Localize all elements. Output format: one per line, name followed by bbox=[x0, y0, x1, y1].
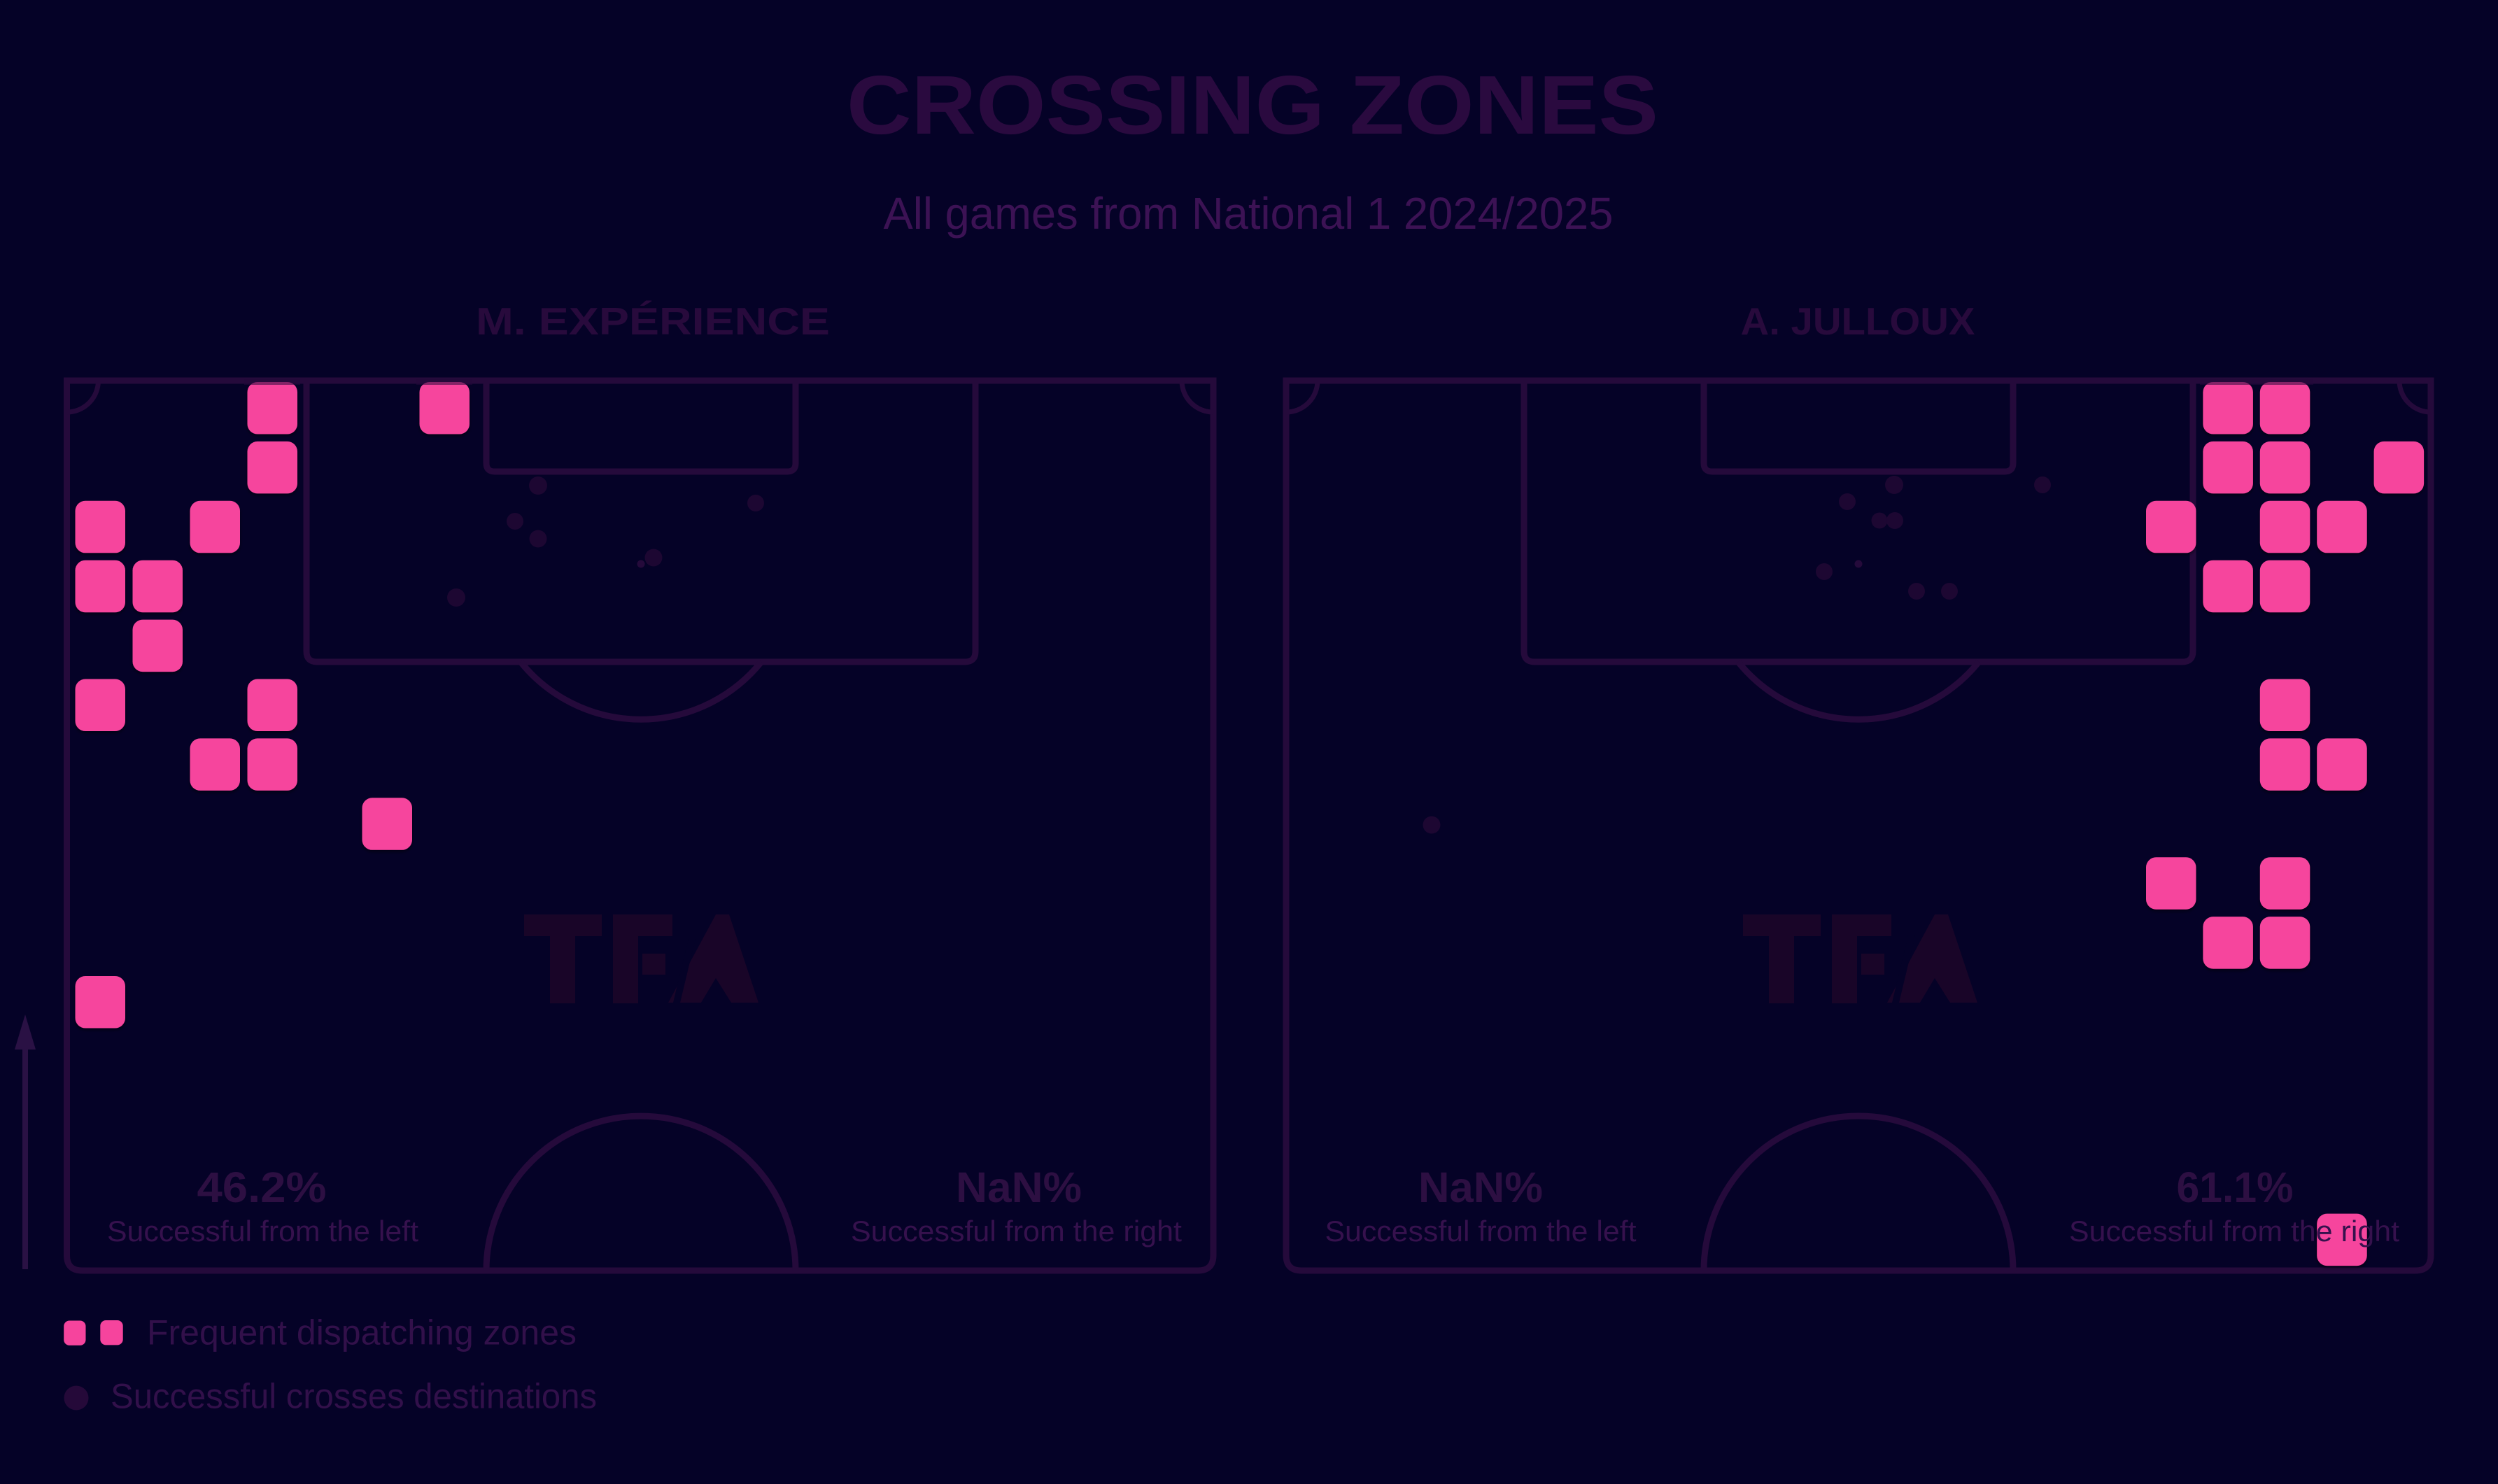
svg-text:M. EXPÉRIENCE: M. EXPÉRIENCE bbox=[476, 300, 830, 343]
svg-text:NaN%: NaN% bbox=[1418, 1164, 1543, 1211]
svg-text:Successful from the right: Successful from the right bbox=[851, 1215, 1182, 1248]
svg-text:46.2%: 46.2% bbox=[197, 1164, 327, 1211]
svg-text:All games from National 1 2024: All games from National 1 2024/2025 bbox=[884, 188, 1614, 239]
svg-text:Successful from the left: Successful from the left bbox=[107, 1215, 418, 1248]
svg-text:A. JULLOUX: A. JULLOUX bbox=[1741, 300, 1975, 343]
svg-text:Frequent dispatching zones: Frequent dispatching zones bbox=[147, 1313, 577, 1352]
svg-text:Successful from the right: Successful from the right bbox=[2069, 1215, 2399, 1248]
svg-text:Successful crosses destination: Successful crosses destinations bbox=[111, 1376, 597, 1416]
svg-text:61.1%: 61.1% bbox=[2177, 1164, 2294, 1211]
svg-text:Successful from the left: Successful from the left bbox=[1325, 1215, 1637, 1248]
svg-text:NaN%: NaN% bbox=[956, 1164, 1082, 1211]
svg-text:CROSSING ZONES: CROSSING ZONES bbox=[847, 59, 1658, 152]
